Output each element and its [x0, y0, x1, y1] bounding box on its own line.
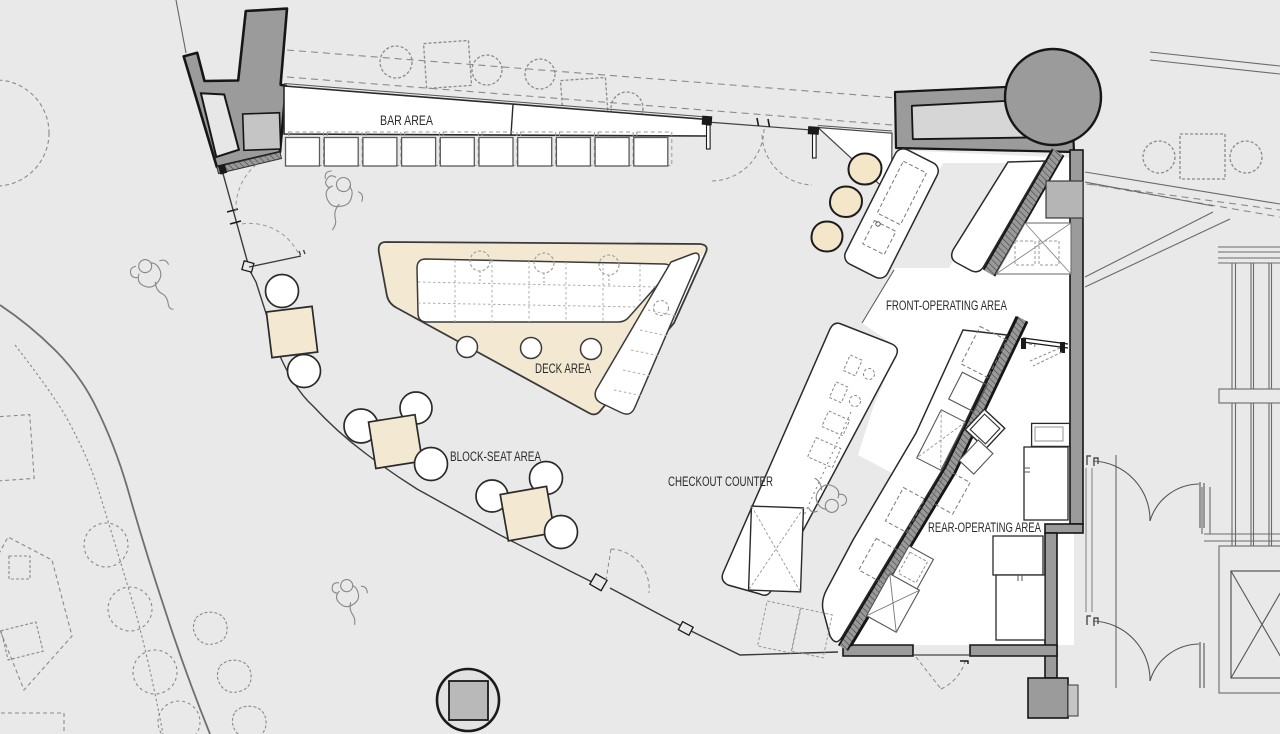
svg-text:BAR AREA: BAR AREA [380, 113, 433, 128]
svg-text:REAR-OPERATING AREA: REAR-OPERATING AREA [928, 520, 1041, 535]
svg-text:BLOCK-SEAT AREA: BLOCK-SEAT AREA [450, 449, 541, 464]
svg-text:FRONT-OPERATING AREA: FRONT-OPERATING AREA [886, 298, 1007, 313]
svg-text:DECK AREA: DECK AREA [535, 361, 591, 376]
svg-text:CHECKOUT COUNTER: CHECKOUT COUNTER [668, 474, 773, 489]
